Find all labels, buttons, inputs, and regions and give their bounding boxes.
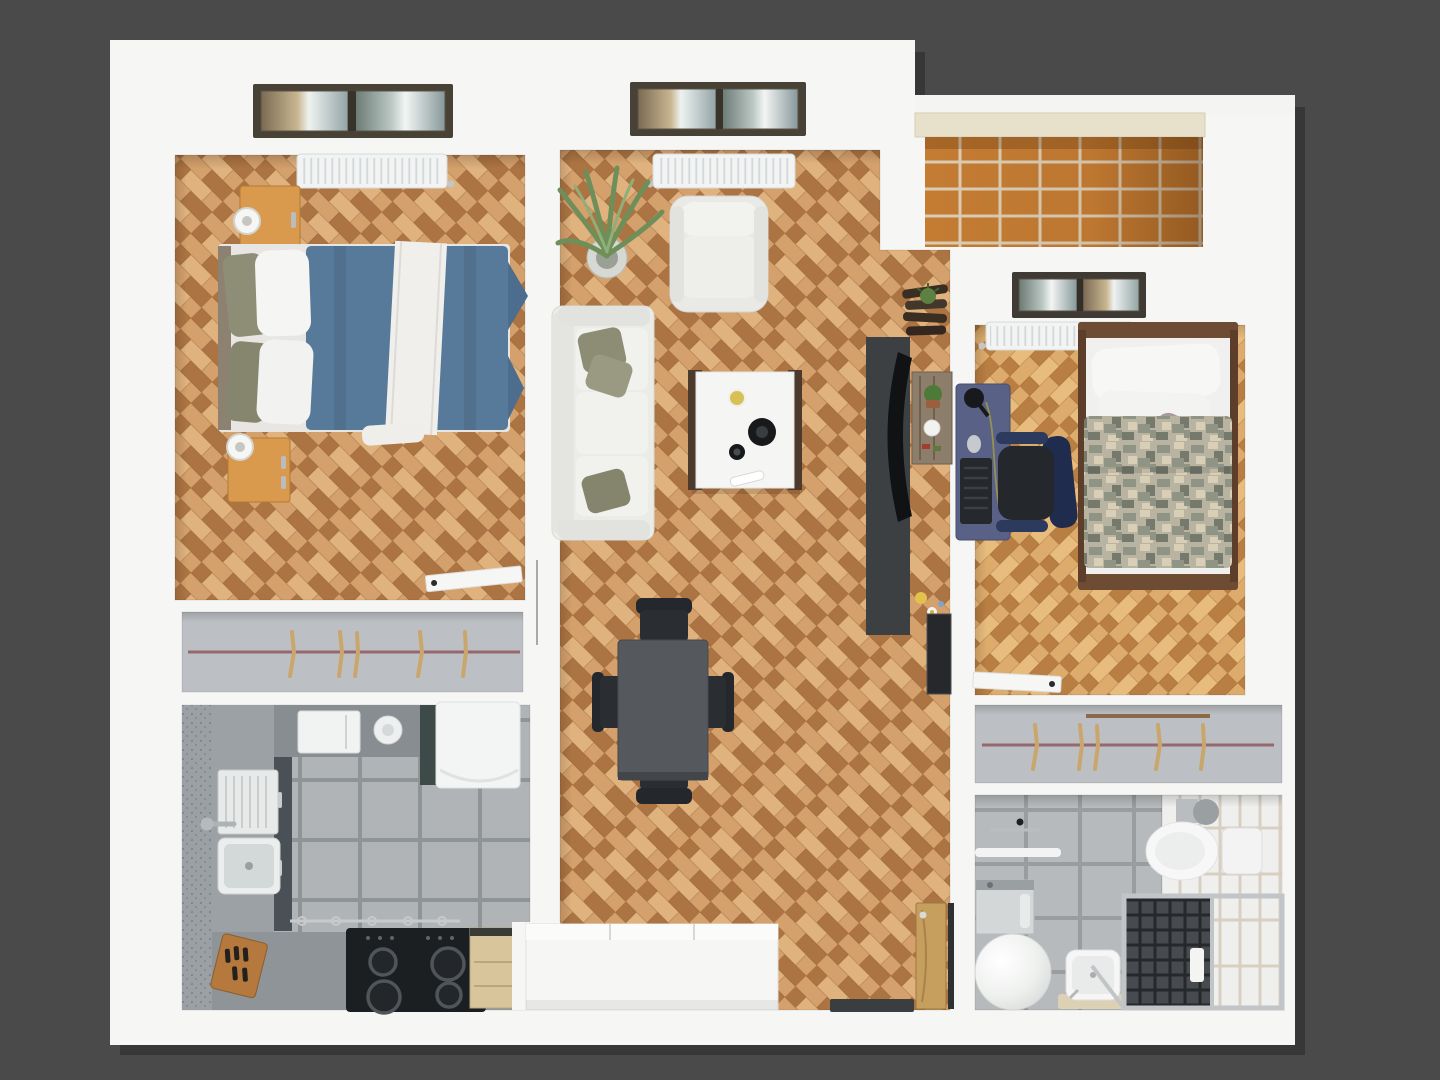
wall-shade (175, 155, 187, 600)
keyboard (960, 458, 992, 524)
microwave (298, 711, 360, 753)
dining-table (618, 640, 708, 780)
headboard (1078, 322, 1238, 338)
countertop-appliance (374, 716, 402, 744)
washing-machine (976, 880, 1034, 934)
room-closet-right (975, 705, 1282, 783)
cooktop (346, 928, 486, 1013)
table-lamp (234, 208, 260, 234)
entrance-door (916, 903, 954, 1009)
balcony-shadow (925, 137, 1203, 247)
candle (729, 390, 745, 406)
living-room-window (630, 82, 806, 136)
dining-chair (636, 788, 692, 804)
mouse (967, 435, 981, 453)
double-bed (218, 241, 528, 446)
single-bed (1078, 322, 1238, 590)
wall-mirror (927, 614, 951, 694)
mug (924, 420, 940, 436)
living-room-radiator (647, 154, 796, 188)
sideboard (526, 924, 778, 1010)
refrigerator (436, 702, 520, 788)
coffee-table (688, 370, 802, 494)
parapet-coping (915, 113, 1205, 137)
footboard (1078, 574, 1238, 590)
bedroom-1-radiator (297, 154, 455, 188)
room-bedroom-2 (956, 272, 1245, 695)
camo-duvet (1084, 416, 1232, 568)
bedroom-1-window (253, 84, 453, 138)
succulent (920, 288, 936, 304)
armrest (996, 432, 1048, 444)
water-heater (975, 934, 1051, 1010)
cistern (1193, 799, 1219, 825)
table-lamp (227, 434, 253, 460)
cabinet-side-panel (420, 705, 436, 785)
room-bathroom (975, 795, 1282, 1010)
sofa (552, 306, 654, 540)
room-closet-left (182, 612, 523, 692)
bedroom-2-window (1012, 272, 1146, 318)
backsplash-strip (182, 705, 212, 1010)
office-chair (996, 432, 1079, 532)
wall-shade (182, 612, 523, 622)
wall-shade (975, 705, 1282, 715)
room-bedroom-1 (175, 84, 537, 645)
dining-chair (640, 610, 688, 642)
armchair (670, 196, 768, 312)
chair-seat (998, 446, 1054, 520)
shower-white-tiles (1212, 896, 1282, 1008)
parapet-top (915, 95, 1295, 115)
shower-towel (1190, 948, 1204, 982)
floor-plan-stage (0, 0, 1440, 1080)
room-kitchen (182, 702, 530, 1013)
rustic-wall-shelf (912, 372, 952, 464)
white-sheet (385, 241, 447, 435)
table-edge (618, 772, 708, 780)
wall-shade (975, 795, 1282, 807)
door-handle (920, 912, 927, 919)
doormat (830, 999, 914, 1012)
floor-plan-render (0, 0, 1440, 1080)
armrest (996, 520, 1048, 532)
wall-shade (560, 150, 572, 1010)
cabinet-handle (278, 792, 282, 808)
